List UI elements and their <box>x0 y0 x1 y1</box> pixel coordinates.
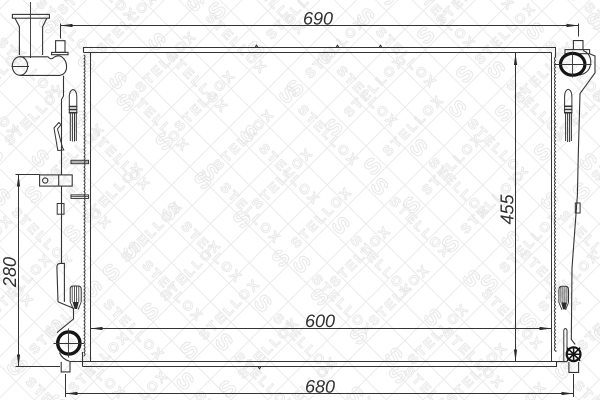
svg-text:280: 280 <box>0 257 20 288</box>
svg-text:690: 690 <box>303 8 333 28</box>
svg-text:680: 680 <box>305 377 335 397</box>
svg-text:600: 600 <box>305 311 335 331</box>
svg-text:455: 455 <box>498 194 518 225</box>
